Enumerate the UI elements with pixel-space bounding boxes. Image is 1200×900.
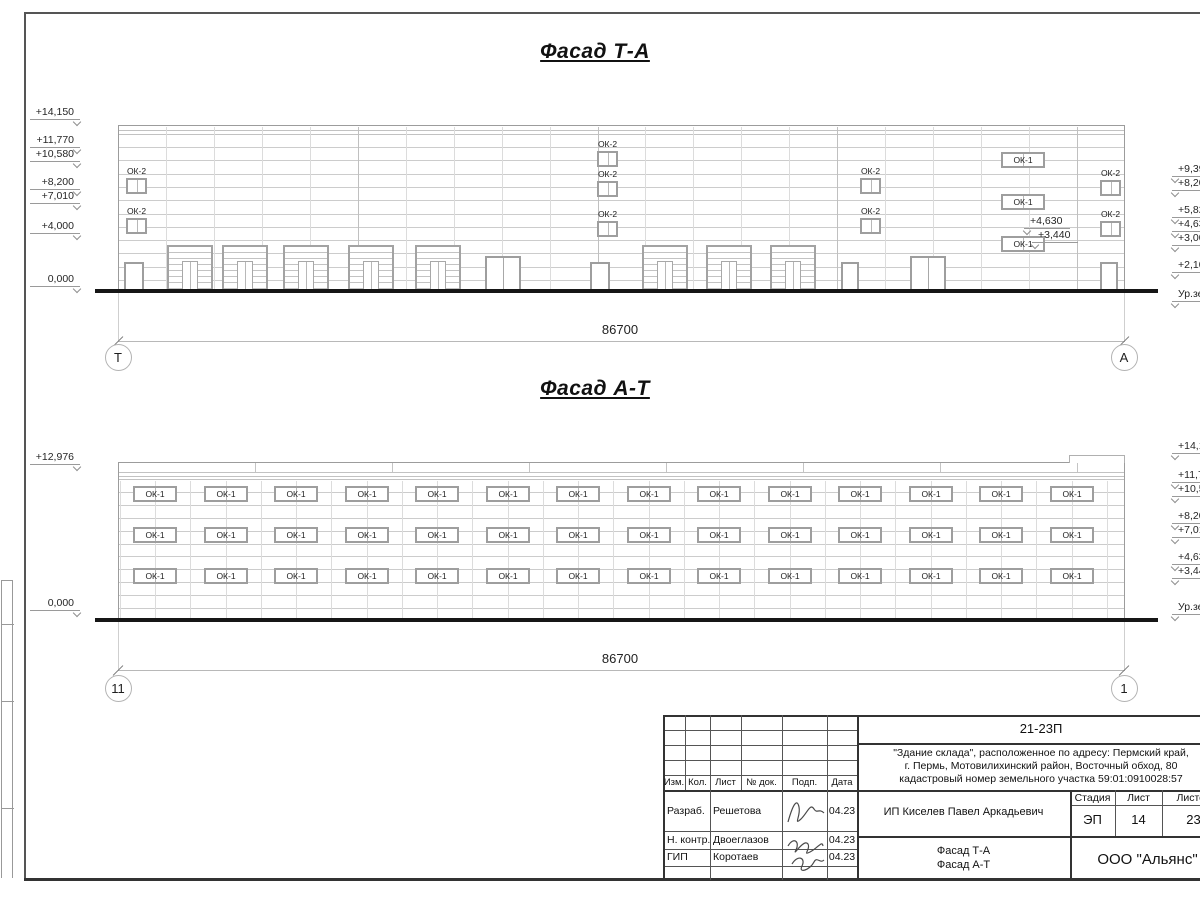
garage-door	[222, 245, 268, 292]
window-ok1: ОК-1	[204, 527, 248, 543]
window-label: ОК-1	[981, 570, 1021, 582]
window-ok2	[597, 151, 618, 167]
elevation-value: +11,770	[30, 134, 80, 148]
window-label: ОК-1	[276, 488, 316, 500]
panel-joint-line	[693, 127, 694, 289]
single-door	[1100, 262, 1118, 292]
window-label: ОК-1	[911, 570, 951, 582]
elevation-value: +14,150	[30, 106, 80, 120]
elevation-mark: +7,01	[1172, 524, 1200, 538]
rev-header: № док.	[741, 777, 782, 788]
window-ok1: ОК-1	[274, 527, 318, 543]
panel-joint-line	[895, 481, 896, 618]
window-label: ОК-1	[629, 529, 669, 541]
sheet-frame-top-line	[24, 12, 1200, 14]
elevation-value: +3,440	[1032, 229, 1078, 243]
siding-line	[119, 187, 1124, 188]
role-date: 04.23	[827, 834, 857, 846]
wicket-divider	[665, 262, 666, 290]
elevation-mark: +5,82	[1172, 204, 1200, 218]
window-label: ОК-1	[981, 488, 1021, 500]
elevation-value: +14,15	[1172, 440, 1200, 454]
elevation-mark: Ур.зе	[1172, 288, 1200, 302]
window-ok1: ОК-1	[979, 527, 1023, 543]
window-ok1: ОК-1	[486, 486, 530, 502]
window-label: ОК-1	[629, 570, 669, 582]
parapet-joint	[392, 463, 393, 472]
window-label: ОК-1	[206, 529, 246, 541]
elevation-mark: +4,63	[1172, 551, 1200, 565]
facade2-outline	[118, 462, 1125, 620]
window-ok1: ОК-1	[133, 486, 177, 502]
siding-line	[119, 227, 1124, 228]
panel-joint-line	[406, 127, 407, 289]
siding-line	[119, 200, 1124, 201]
window-ok1: ОК-1	[133, 568, 177, 584]
elevation-value: +4,63	[1172, 218, 1200, 232]
elevation-value: +8,20	[1172, 510, 1200, 524]
panel-joint-line	[1036, 481, 1037, 618]
double-door	[910, 256, 946, 292]
panel-joint-line	[402, 481, 403, 618]
panel-joint-line	[543, 481, 544, 618]
window-label: ОК-1	[558, 570, 598, 582]
window-label: ОК-1	[347, 529, 387, 541]
siding-line	[119, 280, 1124, 281]
window-label: ОК-1	[699, 529, 739, 541]
window-label: ОК-1	[347, 570, 387, 582]
window-mullion	[608, 223, 609, 235]
wicket-divider	[306, 262, 307, 290]
parapet-line	[119, 479, 1124, 480]
raised-parapet	[1069, 455, 1125, 463]
single-door	[841, 262, 859, 292]
signature	[784, 794, 826, 830]
window-label: ОК-2	[853, 166, 888, 176]
panel-joint-line	[981, 127, 982, 289]
panel-joint-line	[261, 481, 262, 618]
elevation-mark: +10,58	[1172, 483, 1200, 497]
double-door	[485, 256, 521, 292]
sheet-value: 14	[1115, 812, 1162, 827]
window-ok1: ОК-1	[1050, 527, 1094, 543]
garage-wicket-door	[182, 261, 198, 291]
window-ok1: ОК-1	[415, 486, 459, 502]
window-ok1: ОК-1	[204, 568, 248, 584]
elevation-value: +9,39	[1172, 163, 1200, 177]
panel-joint-line	[966, 481, 967, 618]
window-label: ОК-1	[911, 488, 951, 500]
elevation-mark: +3,44	[1172, 565, 1200, 579]
elevation-value: +10,580	[30, 148, 80, 162]
elevation-value: +8,200	[30, 176, 80, 190]
axis-extension-line	[1124, 622, 1125, 670]
window-label: ОК-1	[488, 529, 528, 541]
elevation-value: 0,000	[30, 273, 80, 287]
window-ok1: ОК-1	[697, 527, 741, 543]
titleblock-line	[857, 743, 1200, 745]
titleblock-line	[857, 836, 1200, 838]
axis-extension-line	[118, 293, 119, 341]
drawing-sheet: { "facade1": { "title": "Фасад Т-А", "di…	[0, 0, 1200, 900]
window-ok1: ОК-1	[415, 568, 459, 584]
doc-number: 21-23П	[857, 721, 1200, 736]
elevation-value: +4,000	[30, 220, 80, 234]
garage-wicket-door	[785, 261, 801, 291]
elevation-mark: +14,150	[30, 106, 80, 120]
window-ok1: ОК-1	[909, 568, 953, 584]
window-ok2	[1100, 221, 1121, 237]
parapet-joint	[255, 463, 256, 472]
elevation-value: +12,976	[30, 451, 80, 465]
window-ok1: ОК-1	[697, 568, 741, 584]
wicket-divider	[438, 262, 439, 290]
window-ok2	[126, 218, 147, 234]
garage-wicket-door	[363, 261, 379, 291]
garage-wicket-door	[237, 261, 253, 291]
titleblock-line	[782, 715, 783, 880]
window-label: ОК-1	[699, 488, 739, 500]
elevation-value: +11,77	[1172, 469, 1200, 483]
parapet-line	[119, 134, 1124, 135]
window-mullion	[137, 220, 138, 232]
window-label: ОК-2	[1093, 168, 1128, 178]
window-ok1: ОК-1	[627, 527, 671, 543]
elevation-mark: +8,20	[1172, 177, 1200, 191]
parapet-line	[119, 130, 1124, 131]
window-ok1: ОК-1	[274, 568, 318, 584]
axis-bubble: 1	[1111, 675, 1138, 702]
window-label: ОК-1	[770, 570, 810, 582]
wicket-divider	[793, 262, 794, 290]
parapet-joint	[803, 463, 804, 472]
parapet-line	[119, 476, 1124, 477]
axis-bubble: Т	[105, 344, 132, 371]
siding-line	[119, 505, 1124, 506]
elevation-mark: 0,000	[30, 597, 80, 611]
window-ok1: ОК-1	[768, 568, 812, 584]
garage-door	[770, 245, 816, 292]
window-label: ОК-2	[853, 206, 888, 216]
window-ok1: ОК-1	[486, 527, 530, 543]
elevation-mark: +3,440	[1032, 229, 1078, 243]
window-ok1: ОК-1	[768, 486, 812, 502]
stamp-divider	[2, 701, 14, 702]
window-mullion	[608, 183, 609, 195]
window-label: ОК-1	[135, 529, 175, 541]
window-ok1: ОК-1	[556, 568, 600, 584]
elevation-value: +3,00	[1172, 232, 1200, 246]
client-name: ИП Киселев Павел Аркадьевич	[857, 806, 1070, 818]
wicket-divider	[371, 262, 372, 290]
sheet-header: Лист	[1115, 792, 1162, 804]
window-label: ОК-2	[119, 206, 154, 216]
role-date: 04.23	[827, 805, 857, 817]
elevation-value: Ур.зе	[1172, 288, 1200, 302]
elevation-mark: +8,20	[1172, 510, 1200, 524]
stamp-divider	[2, 624, 14, 625]
elevation-mark: Ур.зе	[1172, 601, 1200, 615]
window-mullion	[1111, 223, 1112, 235]
garage-door	[167, 245, 213, 292]
panel-joint-line	[613, 481, 614, 618]
elevation-mark: +11,770	[30, 134, 80, 148]
titleblock-line	[1070, 805, 1200, 806]
rev-header: Дата	[827, 777, 857, 788]
window-label: ОК-1	[770, 488, 810, 500]
window-mullion	[871, 180, 872, 192]
window-label: ОК-1	[488, 570, 528, 582]
rev-header: Изм.	[663, 777, 685, 788]
window-label: ОК-1	[417, 529, 457, 541]
panel-joint-line	[550, 127, 551, 289]
window-mullion	[871, 220, 872, 232]
role-label: Н. контр.	[667, 834, 710, 846]
elevation-value: +3,44	[1172, 565, 1200, 579]
window-ok1: ОК-1	[768, 527, 812, 543]
dimension-line	[118, 341, 1125, 342]
elevation-mark: 0,000	[30, 273, 80, 287]
dimension-line	[118, 670, 1125, 671]
axis-extension-line	[118, 622, 119, 670]
role-name: Двоеглазов	[713, 834, 769, 846]
window-label: ОК-1	[911, 529, 951, 541]
window-label: ОК-1	[840, 570, 880, 582]
elevation-mark: +4,63	[1172, 218, 1200, 232]
window-ok2	[126, 178, 147, 194]
titleblock-line	[663, 715, 1200, 717]
garage-door	[415, 245, 461, 292]
elevation-value: +7,010	[30, 190, 80, 204]
panel-joint-line	[120, 481, 121, 618]
window-ok2	[597, 181, 618, 197]
window-mullion	[608, 153, 609, 165]
titleblock-line	[710, 715, 711, 880]
stamp-divider	[2, 808, 14, 809]
window-label: ОК-2	[1093, 209, 1128, 219]
window-label: ОК-1	[770, 529, 810, 541]
elevation-mark: +9,39	[1172, 163, 1200, 177]
single-door	[590, 262, 610, 292]
window-label: ОК-1	[135, 570, 175, 582]
siding-line	[119, 253, 1124, 254]
siding-line	[119, 556, 1124, 557]
window-label: ОК-1	[840, 529, 880, 541]
parapet-joint	[529, 463, 530, 472]
door-leaf-divider	[503, 258, 504, 290]
siding-line	[119, 544, 1124, 545]
sheet-frame-left-line	[24, 12, 26, 880]
siding-line	[119, 582, 1124, 583]
panel-joint-line	[1077, 127, 1078, 289]
wicket-divider	[190, 262, 191, 290]
window-ok1: ОК-1	[345, 486, 389, 502]
facade-ta-title: Фасад Т-А	[415, 40, 775, 64]
window-ok1: ОК-1	[274, 486, 318, 502]
elevation-mark: +10,580	[30, 148, 80, 162]
window-ok1: ОК-1	[1050, 486, 1094, 502]
elevation-value: Ур.зе	[1172, 601, 1200, 615]
sheets-value: 23	[1162, 812, 1200, 827]
window-ok1: ОК-1	[1001, 194, 1045, 210]
role-name: Коротаев	[713, 851, 758, 863]
window-label: ОК-1	[1052, 529, 1092, 541]
dimension-label: 86700	[560, 322, 680, 337]
garage-wicket-door	[721, 261, 737, 291]
rev-header: Лист	[710, 777, 741, 788]
siding-line	[119, 569, 1124, 570]
siding-line	[119, 267, 1124, 268]
window-ok1: ОК-1	[979, 568, 1023, 584]
window-label: ОК-1	[1003, 154, 1043, 166]
elevation-mark: +3,00	[1172, 232, 1200, 246]
window-label: ОК-1	[1052, 570, 1092, 582]
role-name: Решетова	[713, 805, 761, 817]
siding-line	[119, 160, 1124, 161]
window-label: ОК-2	[590, 169, 625, 179]
window-label: ОК-1	[840, 488, 880, 500]
ground-line	[95, 618, 1158, 622]
garage-wicket-door	[430, 261, 446, 291]
window-label: ОК-1	[417, 488, 457, 500]
window-label: ОК-1	[558, 488, 598, 500]
siding-line	[119, 531, 1124, 532]
elevation-value: +4,63	[1172, 551, 1200, 565]
elevation-value: +4,630	[1024, 215, 1070, 229]
window-ok1: ОК-1	[697, 486, 741, 502]
panel-joint-line	[331, 481, 332, 618]
window-ok1: ОК-1	[486, 568, 530, 584]
window-ok1: ОК-1	[204, 486, 248, 502]
window-ok1: ОК-1	[1050, 568, 1094, 584]
panel-joint-line	[825, 481, 826, 618]
elevation-mark: +4,000	[30, 220, 80, 234]
garage-wicket-door	[657, 261, 673, 291]
window-ok1: ОК-1	[1001, 152, 1045, 168]
stage-header: Стадия	[1070, 792, 1115, 804]
window-ok1: ОК-1	[415, 527, 459, 543]
window-label: ОК-1	[206, 570, 246, 582]
window-label: ОК-1	[981, 529, 1021, 541]
elevation-mark: +12,976	[30, 451, 80, 465]
window-ok1: ОК-1	[556, 486, 600, 502]
elevation-value: 0,000	[30, 597, 80, 611]
sheet-frame-bottom-line	[24, 878, 1200, 881]
window-label: ОК-2	[590, 139, 625, 149]
window-ok1: ОК-1	[627, 568, 671, 584]
garage-door	[283, 245, 329, 292]
elevation-value: +5,82	[1172, 204, 1200, 218]
rev-header: Подп.	[782, 777, 827, 788]
dimension-label: 86700	[560, 651, 680, 666]
window-label: ОК-1	[135, 488, 175, 500]
garage-wicket-door	[298, 261, 314, 291]
drawing-name-line: Фасад А-Т	[857, 859, 1070, 871]
garage-door	[348, 245, 394, 292]
parapet-joint	[1077, 463, 1078, 472]
window-ok2	[1100, 180, 1121, 196]
panel-joint-line	[837, 127, 838, 289]
axis-bubble: А	[1111, 344, 1138, 371]
window-ok2	[860, 218, 881, 234]
ground-line	[95, 289, 1158, 293]
window-label: ОК-2	[590, 209, 625, 219]
window-ok1: ОК-1	[556, 527, 600, 543]
single-door	[124, 262, 144, 292]
elevation-value: +8,20	[1172, 177, 1200, 191]
siding-line	[119, 240, 1124, 241]
window-ok2	[597, 221, 618, 237]
parapet-joint	[666, 463, 667, 472]
window-label: ОК-1	[206, 488, 246, 500]
panel-joint-line	[1107, 481, 1108, 618]
wicket-divider	[729, 262, 730, 290]
siding-line	[119, 595, 1124, 596]
window-ok1: ОК-1	[838, 568, 882, 584]
panel-joint-line	[214, 127, 215, 289]
signature	[784, 832, 826, 874]
siding-line	[119, 518, 1124, 519]
parapet-line	[119, 472, 1124, 473]
elevation-mark: +2,10	[1172, 259, 1200, 273]
left-margin-stamp	[1, 580, 13, 878]
facade-at-title: Фасад А-Т	[415, 377, 775, 401]
axis-extension-line	[1124, 293, 1125, 341]
stage-value: ЭП	[1070, 812, 1115, 827]
window-ok1: ОК-1	[909, 527, 953, 543]
window-ok1: ОК-1	[627, 486, 671, 502]
window-label: ОК-1	[1003, 196, 1043, 208]
wicket-divider	[245, 262, 246, 290]
elevation-value: +10,58	[1172, 483, 1200, 497]
elevation-value: +2,10	[1172, 259, 1200, 273]
titleblock-line	[663, 715, 665, 880]
parapet-joint	[940, 463, 941, 472]
panel-joint-line	[754, 481, 755, 618]
panel-joint-line	[684, 481, 685, 618]
window-label: ОК-1	[347, 488, 387, 500]
panel-joint-line	[472, 481, 473, 618]
window-ok1: ОК-1	[345, 568, 389, 584]
rev-header: Кол.	[685, 777, 710, 788]
window-label: ОК-1	[629, 488, 669, 500]
axis-bubble: 11	[105, 675, 132, 702]
window-label: ОК-1	[558, 529, 598, 541]
sheets-header: Листов	[1162, 792, 1200, 804]
window-label: ОК-1	[488, 488, 528, 500]
window-label: ОК-1	[699, 570, 739, 582]
project-description-line: г. Пермь, Мотовилихинский район, Восточн…	[857, 760, 1200, 772]
window-mullion	[1111, 182, 1112, 194]
elevation-mark: +4,630	[1024, 215, 1070, 229]
role-label: Разраб.	[667, 805, 705, 817]
siding-line	[119, 608, 1124, 609]
elevation-mark: +8,200	[30, 176, 80, 190]
window-ok1: ОК-1	[838, 486, 882, 502]
window-label: ОК-1	[417, 570, 457, 582]
drawing-name-line: Фасад Т-А	[857, 845, 1070, 857]
window-ok1: ОК-1	[133, 527, 177, 543]
siding-line	[119, 492, 1124, 493]
window-label: ОК-2	[119, 166, 154, 176]
role-label: ГИП	[667, 851, 688, 863]
window-label: ОК-1	[276, 570, 316, 582]
role-date: 04.23	[827, 851, 857, 863]
garage-door	[706, 245, 752, 292]
garage-door	[642, 245, 688, 292]
window-ok1: ОК-1	[345, 527, 389, 543]
project-description-line: кадастровый номер земельного участка 59:…	[857, 773, 1200, 785]
